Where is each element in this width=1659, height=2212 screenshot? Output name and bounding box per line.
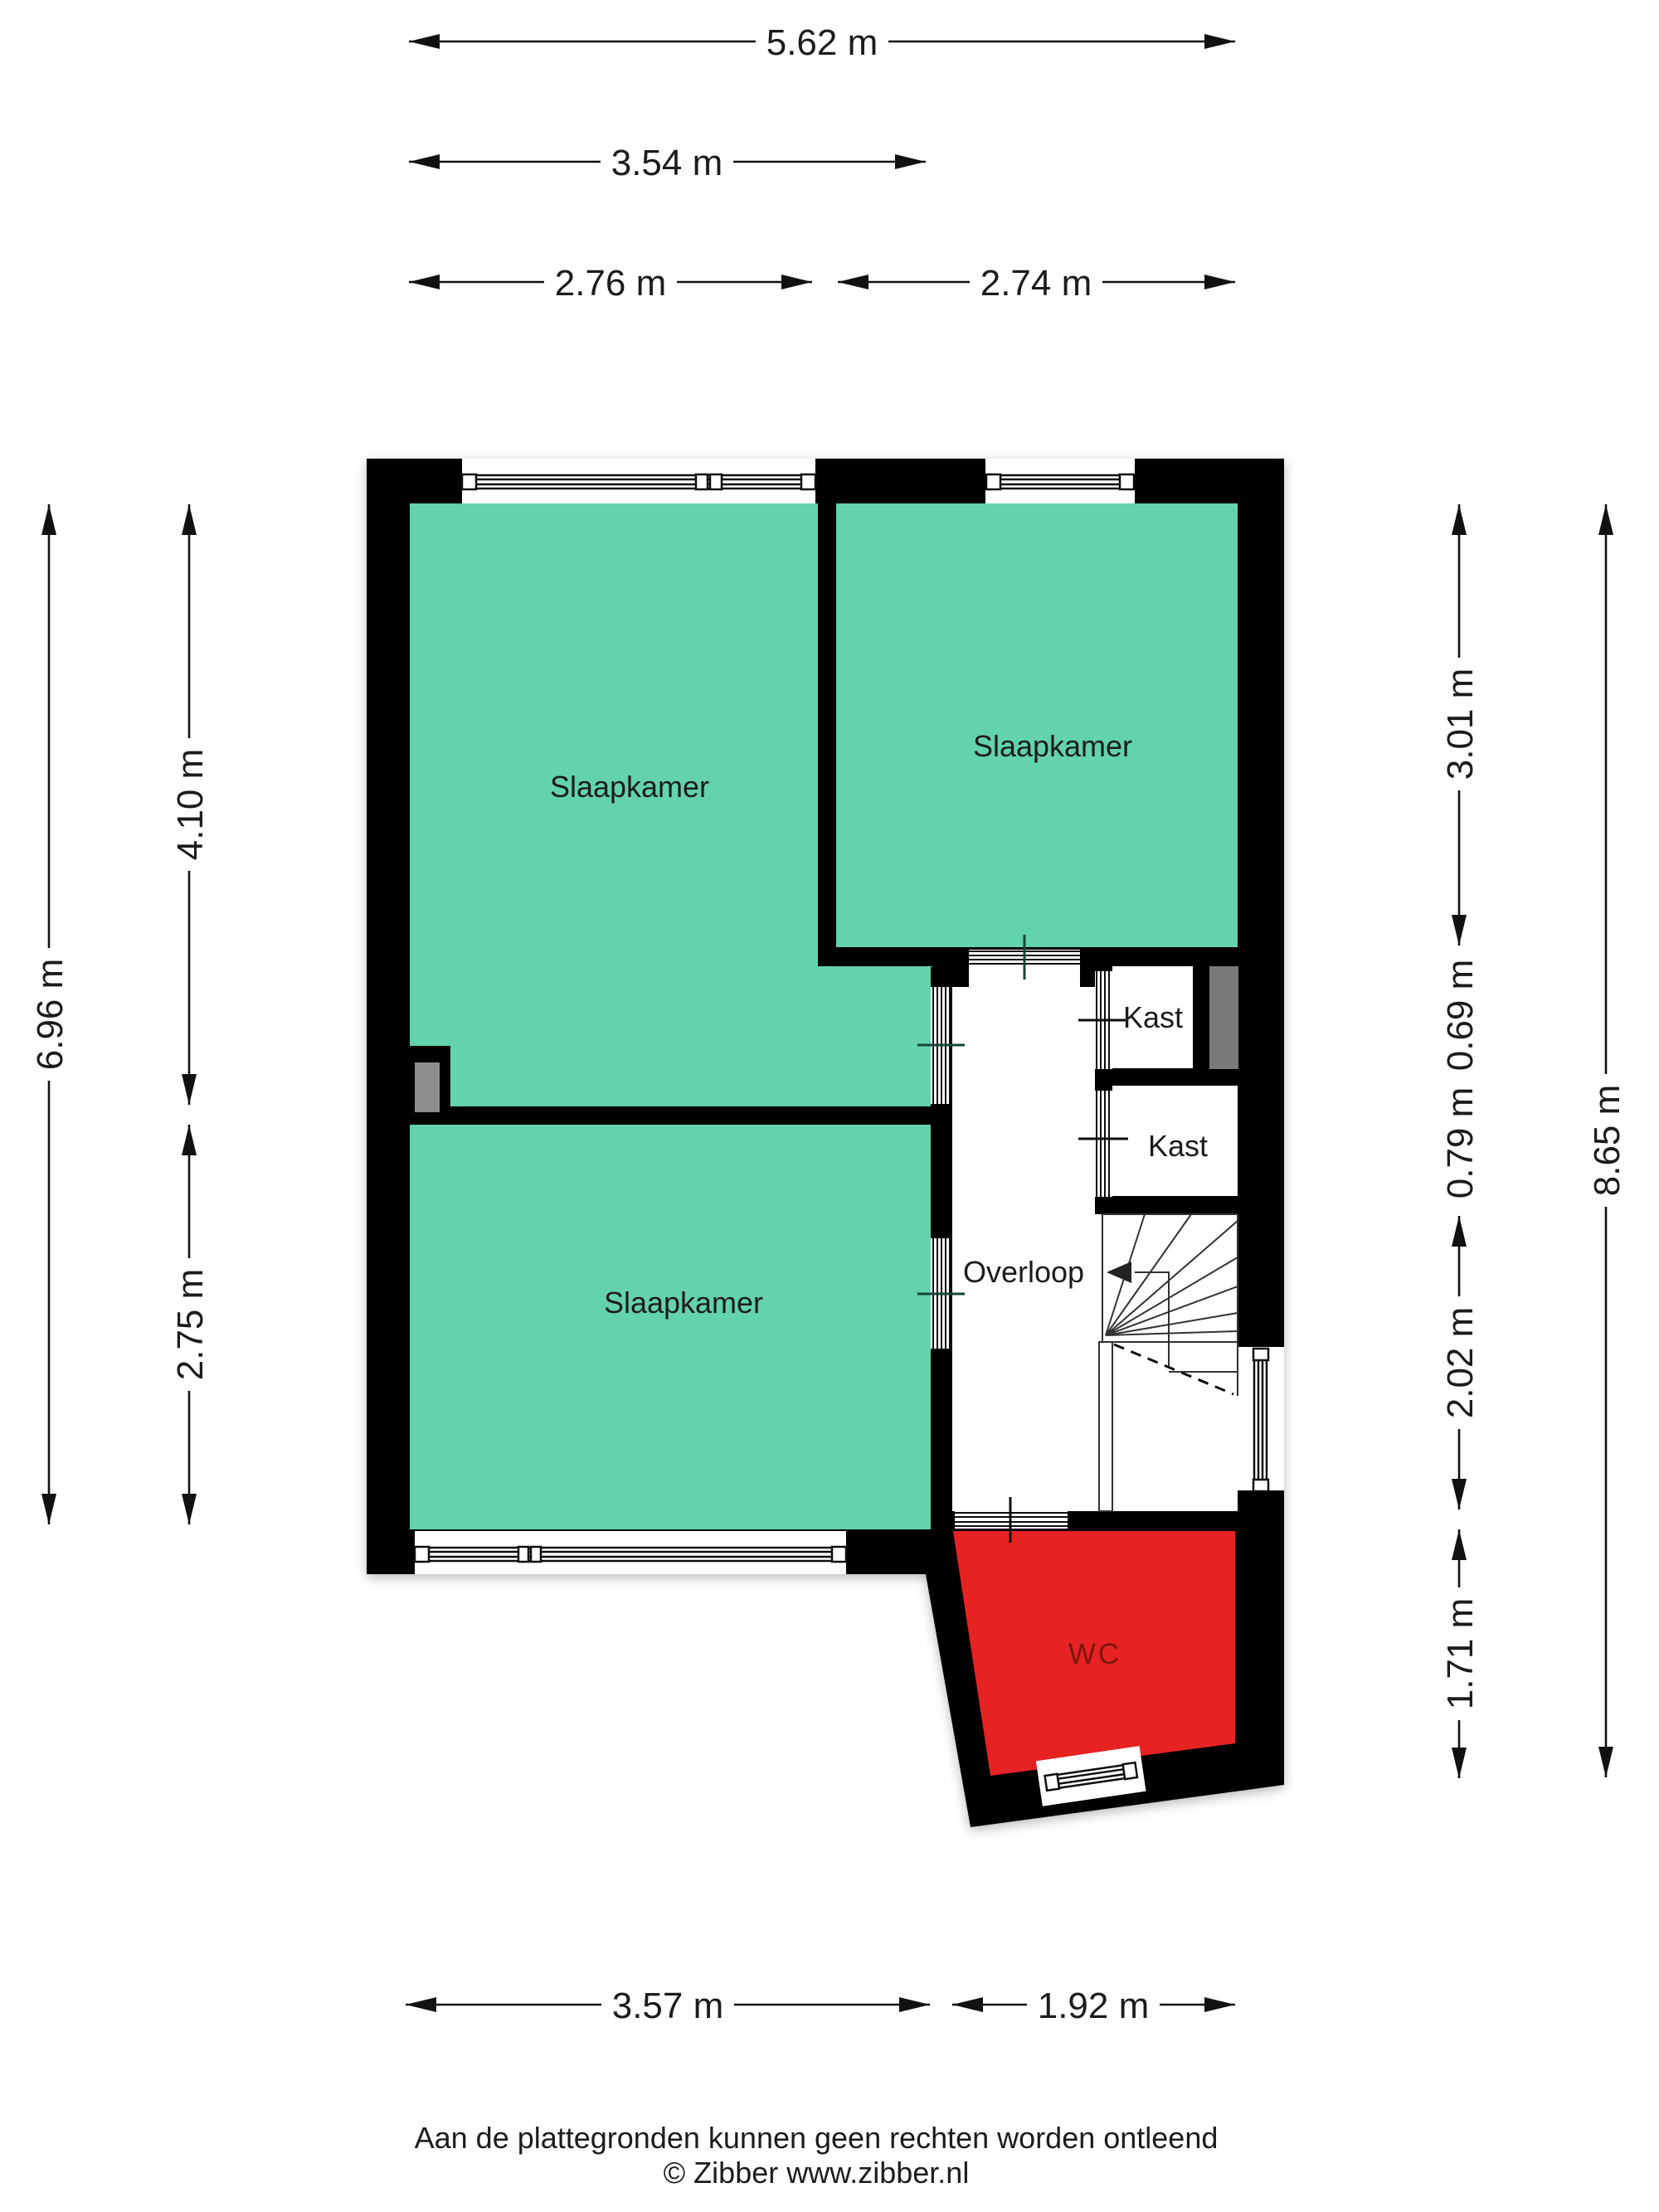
- svg-text:Kast: Kast: [1123, 1000, 1183, 1034]
- svg-text:8.65 m: 8.65 m: [1587, 1085, 1627, 1197]
- svg-text:6.96 m: 6.96 m: [30, 959, 71, 1071]
- svg-text:0.79 m: 0.79 m: [1440, 1087, 1481, 1199]
- svg-text:2.02 m: 2.02 m: [1440, 1307, 1481, 1419]
- svg-text:Slaapkamer: Slaapkamer: [550, 770, 709, 804]
- svg-text:Overloop: Overloop: [963, 1255, 1084, 1289]
- svg-text:3.57 m: 3.57 m: [612, 1986, 724, 2026]
- svg-text:1.92 m: 1.92 m: [1038, 1986, 1150, 2026]
- svg-text:2.75 m: 2.75 m: [170, 1269, 211, 1381]
- svg-text:Aan de plattegronden kunnen ge: Aan de plattegronden kunnen geen rechten…: [415, 2121, 1219, 2155]
- svg-text:0.69 m: 0.69 m: [1440, 960, 1481, 1072]
- svg-text:2.74 m: 2.74 m: [980, 263, 1092, 304]
- svg-text:2.76 m: 2.76 m: [555, 263, 667, 304]
- svg-text:3.54 m: 3.54 m: [611, 143, 723, 183]
- svg-text:1.71 m: 1.71 m: [1440, 1598, 1481, 1710]
- svg-text:WC: WC: [1068, 1638, 1121, 1670]
- svg-text:© Zibber www.zibber.nl: © Zibber www.zibber.nl: [664, 2156, 970, 2190]
- svg-text:Slaapkamer: Slaapkamer: [973, 729, 1132, 763]
- svg-text:3.01 m: 3.01 m: [1440, 668, 1481, 780]
- svg-text:Slaapkamer: Slaapkamer: [604, 1286, 763, 1320]
- svg-text:Kast: Kast: [1148, 1129, 1208, 1163]
- svg-text:5.62 m: 5.62 m: [766, 22, 878, 63]
- svg-text:4.10 m: 4.10 m: [170, 749, 211, 861]
